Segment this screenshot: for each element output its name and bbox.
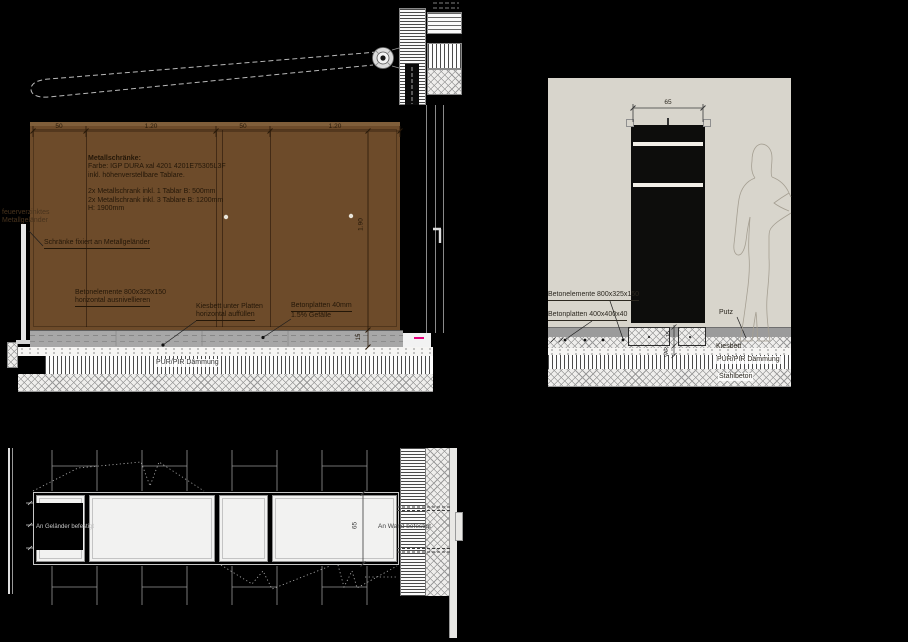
- daemmung-label-section: PUR/PIR Dämmung: [716, 356, 781, 364]
- section-view: [540, 70, 800, 400]
- dim-15-section: 15: [666, 328, 672, 340]
- plan-cabinet-inner: [275, 498, 394, 559]
- betonelemente-line1: Betonelemente 800x325x150: [75, 289, 166, 297]
- betonelemente-line2: horizontal ausnivellieren: [75, 297, 150, 307]
- plan-cabinet-inner: [222, 498, 265, 559]
- railing-post: [21, 224, 26, 342]
- plan-cabinet: [89, 495, 215, 562]
- wall-concrete-block: [427, 69, 462, 95]
- cabinet-corner-bracket: [626, 119, 634, 127]
- cabinet-corner-bracket: [703, 119, 711, 127]
- betonplatten-band: [30, 330, 403, 347]
- stahlbeton-label: Stahlbeton: [718, 373, 753, 381]
- plan-right-label: An Wand befestigt: [378, 523, 431, 531]
- plan-view: [0, 440, 470, 642]
- railing-label-line2: Metallgeländer: [2, 217, 49, 225]
- floor-step: [403, 333, 431, 347]
- kiesbett-strip: [18, 347, 433, 356]
- note-line: Farbe: IGP DURA xal 4201 4201E75305L3F: [88, 163, 258, 171]
- kiesbett-label: Kiesbett unter Platten horizontal auffül…: [196, 303, 263, 321]
- panel-joint: [270, 130, 271, 327]
- band-dash-line: [30, 335, 403, 336]
- plan-wall-face-strip: [449, 448, 457, 638]
- plan-wall-hatch: [400, 448, 426, 596]
- cabinet-top-tick: [667, 118, 669, 125]
- wall-face-line: [426, 105, 427, 333]
- daemmung-label-elev: PUR/PIR Dämmung: [155, 359, 220, 367]
- dim-120-a: 1.20: [141, 123, 161, 130]
- betonplatten-label-section: Betonplatten 400x400x40: [548, 311, 627, 321]
- note-line: inkl. höhenverstellbare Tablare.: [88, 172, 258, 180]
- putz-label: Putz: [719, 309, 733, 317]
- band-dash-line: [30, 341, 403, 342]
- slab-gap: [427, 34, 462, 43]
- stahlbeton-band: [18, 374, 433, 392]
- metal-cabinet-note: Metallschränke: Farbe: IGP DURA xal 4201…: [88, 155, 258, 213]
- edge-hatch-column: [7, 342, 18, 368]
- dim-65-section: 65: [658, 99, 678, 106]
- note-line: 2x Metallschrank inkl. 1 Tablar B: 500mm: [88, 188, 258, 196]
- base-dot: [689, 336, 691, 338]
- plan-railing-line: [12, 448, 13, 594]
- betonplatten-line1: Betonplatten 40mm: [291, 302, 352, 312]
- cabinet-shelf: [633, 142, 703, 146]
- fixed-to-railing-label: Schränke fixiert an Metallgeländer: [44, 239, 150, 249]
- kiesbett-label-section: Kiesbett: [716, 343, 741, 351]
- slab-edge: [427, 12, 462, 34]
- betonplatten-line2: 1.5% Gefälle: [291, 312, 352, 320]
- kiesbett-line2: horizontal auffüllen: [196, 311, 255, 321]
- railing-post-base: [16, 340, 30, 344]
- cad-drawing-canvas: 50 1.20 50 1.20 1.90 15 Metallschränke: …: [0, 0, 908, 642]
- dim-15-elev: 15: [356, 329, 362, 345]
- wall-slot: [405, 64, 419, 105]
- plan-left-label: An Geländer befestigt: [36, 524, 94, 531]
- dim-50-b: 50: [233, 123, 253, 130]
- dim-65-plan: 65: [352, 517, 359, 535]
- plan-cabinet-inner: [92, 498, 212, 559]
- wall-insulation-block: [427, 43, 462, 69]
- plan-cabinet: [219, 495, 268, 562]
- note-line: 2x Metallschrank inkl. 3 Tablare B: 1200…: [88, 197, 258, 205]
- dim-190: 1.90: [358, 214, 365, 236]
- wall-face-line: [435, 105, 436, 333]
- wall-face-line: [443, 105, 444, 333]
- plan-railing-line: [8, 448, 10, 594]
- note-line: H: 1900mm: [88, 205, 258, 213]
- base-dot: [648, 336, 650, 338]
- stahlbeton-band: [548, 369, 791, 387]
- dim-50-a: 50: [49, 123, 69, 130]
- plan-wall-concrete: [426, 448, 449, 596]
- dim-120-b: 1.20: [325, 123, 345, 130]
- kiesbett-line1: Kiesbett unter Platten: [196, 303, 263, 311]
- magenta-mark: [414, 337, 424, 339]
- plan-wall-notch: [455, 512, 463, 541]
- cabinet-section: [631, 125, 705, 323]
- cabinet-base-block: [678, 327, 706, 346]
- railing-label: feuerverzinktes Metallgeländer: [2, 209, 49, 226]
- betonplatten-label: Betonplatten 40mm 1.5% Gefälle: [291, 302, 352, 320]
- railing-label-line1: feuerverzinktes: [2, 209, 49, 217]
- daemmung-band: [45, 356, 433, 374]
- betonelemente-label: Betonelemente 800x325x150 horizontal aus…: [75, 289, 166, 307]
- dim-var-section: VAR: [664, 345, 670, 359]
- cabinet-shelf: [633, 183, 703, 187]
- betonelemente-label-section: Betonelemente 800x325x150: [548, 291, 639, 301]
- note-title: Metallschränke:: [88, 155, 258, 163]
